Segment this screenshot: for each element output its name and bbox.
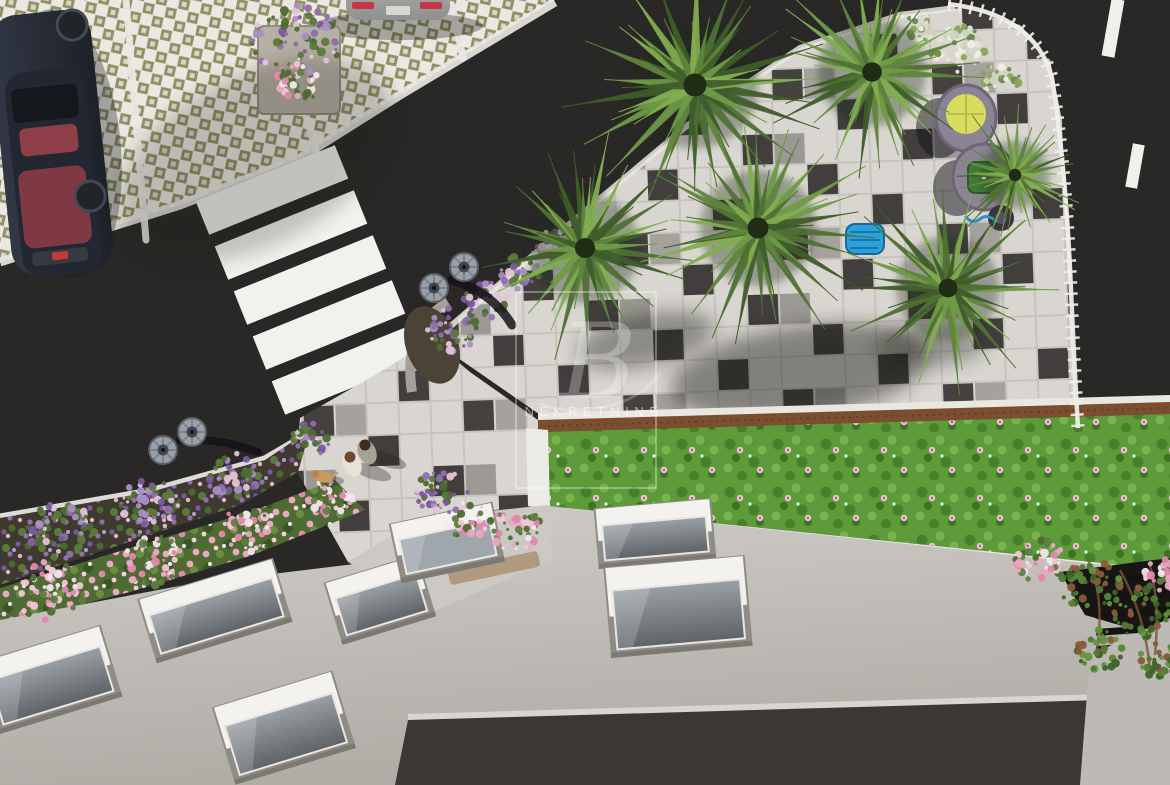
street-lamp bbox=[420, 274, 448, 302]
street-lamp bbox=[149, 436, 177, 464]
window bbox=[594, 498, 717, 569]
watermark-label: NEKRETNINE bbox=[525, 404, 664, 419]
aerial-render: B NEKRETNINE bbox=[0, 0, 1170, 785]
street-lamp bbox=[178, 418, 206, 446]
window bbox=[603, 555, 752, 658]
street-lamp bbox=[450, 253, 478, 281]
planter-white-cap bbox=[526, 428, 550, 508]
